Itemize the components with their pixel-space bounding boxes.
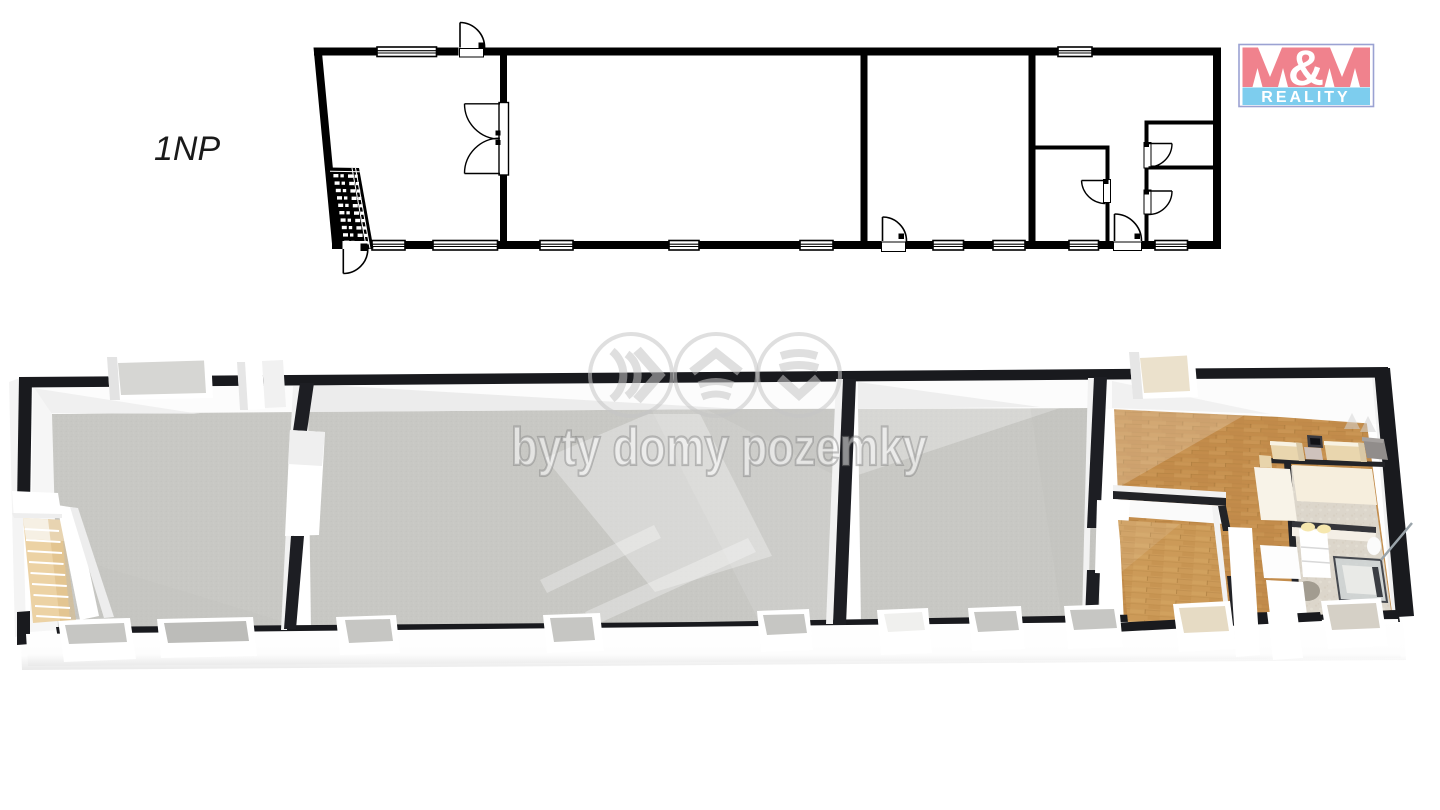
svg-text:byty domy pozemky: byty domy pozemky <box>511 418 927 477</box>
svg-text:1NP: 1NP <box>154 130 220 168</box>
svg-text:REALITY: REALITY <box>1261 89 1350 106</box>
